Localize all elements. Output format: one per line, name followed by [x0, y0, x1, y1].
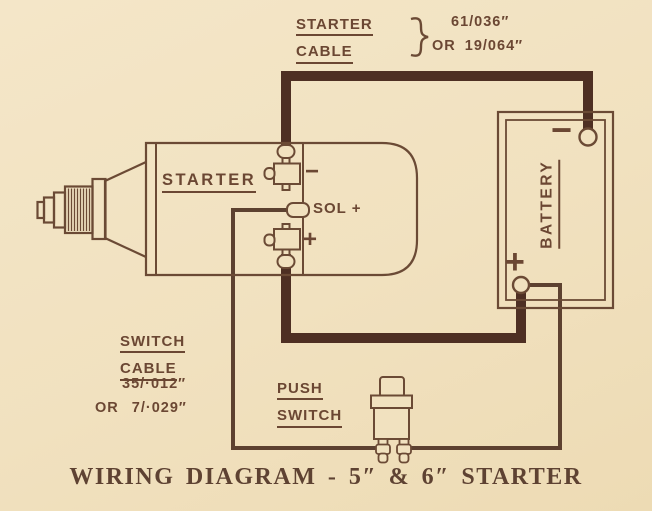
shaft-step-2	[44, 198, 54, 223]
starter-cable-label: STARTER CABLE	[296, 17, 373, 72]
push-switch	[371, 377, 412, 463]
push-switch-line1: PUSH	[277, 381, 323, 400]
shaft-step-1	[54, 193, 65, 228]
battery-plus-sign: +	[505, 245, 525, 279]
starter-cable-bracket	[411, 18, 428, 55]
starter-label: STARTER	[162, 172, 256, 193]
starter-minus-sign: −	[305, 160, 319, 184]
starter-sol-label: SOL +	[313, 201, 362, 217]
starter-label-wrap: STARTER	[162, 172, 256, 193]
push-switch-terminal-left	[376, 439, 390, 463]
drive-flange	[93, 179, 106, 239]
battery-label-wrap: BATTERY	[538, 169, 560, 249]
push-switch-body	[374, 408, 409, 439]
starter-cable-size-alt: OR 19/064″	[432, 39, 523, 54]
starter-cable-size-primary: 61/036″	[451, 15, 509, 30]
starter-cable-line2: CABLE	[296, 44, 353, 63]
diagram-title: WIRING DIAGRAM - 5″ & 6″ STARTER	[0, 464, 652, 491]
switch-cable-size-alt: OR 7/·029″	[95, 401, 187, 416]
push-switch-cap	[371, 396, 412, 409]
push-switch-button	[380, 377, 404, 397]
starter-minus-terminal	[265, 145, 301, 190]
switch-cable-size-primary: 35/·012″	[122, 377, 186, 392]
battery-to-starter-wire	[286, 254, 521, 338]
battery-to-switch-wire	[402, 285, 560, 448]
push-switch-line2: SWITCH	[277, 408, 342, 427]
drive-end	[38, 162, 147, 257]
battery-minus-sign: −	[551, 112, 572, 148]
switch-cable-line1: SWITCH	[120, 334, 185, 353]
starter-sol-terminal	[287, 203, 309, 217]
spline-hatching	[69, 189, 90, 232]
starter-cable-line1: STARTER	[296, 17, 373, 36]
battery-minus-terminal	[580, 129, 597, 146]
starter-plus-terminal	[265, 224, 301, 268]
shaft-tip	[38, 202, 45, 218]
push-switch-terminal-right	[397, 439, 411, 463]
drive-cone	[105, 162, 146, 257]
wiring-diagram-page: STARTER CABLE 61/036″ OR 19/064″ STARTER…	[0, 0, 652, 511]
starter-plus-sign: +	[303, 228, 317, 252]
battery-label: BATTERY	[538, 160, 560, 249]
push-switch-label: PUSH SWITCH	[277, 381, 342, 436]
